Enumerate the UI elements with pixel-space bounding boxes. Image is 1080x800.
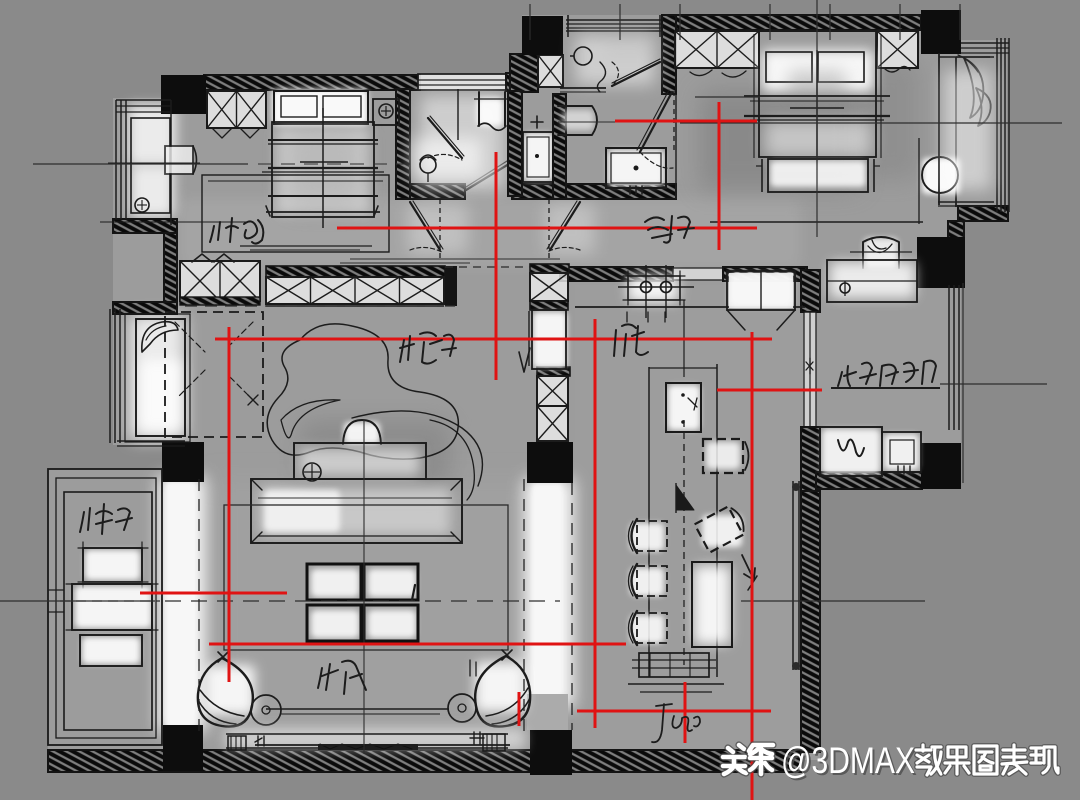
svg-text:@3DMAX: @3DMAX [781,739,915,781]
